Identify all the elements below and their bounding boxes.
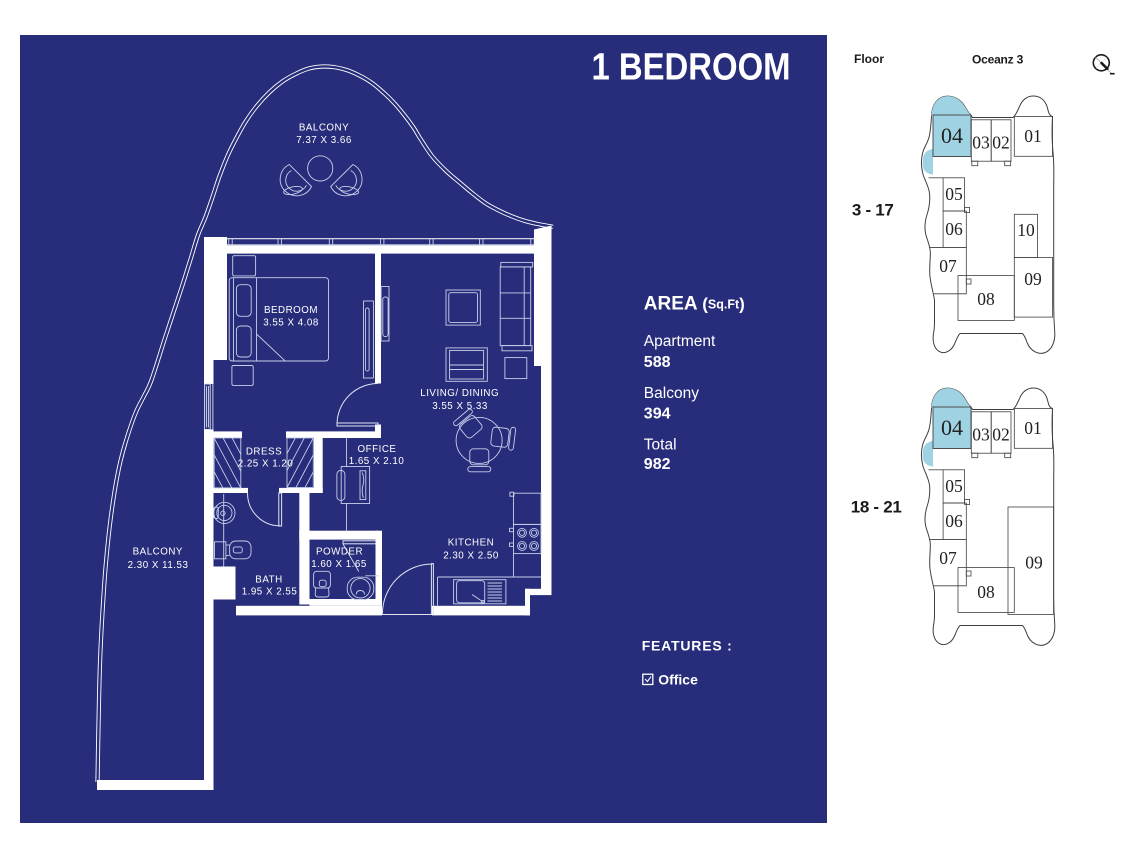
svg-text:08: 08 <box>977 289 995 309</box>
svg-text:Floor: Floor <box>854 52 884 66</box>
svg-text:3.55 X 4.08: 3.55 X 4.08 <box>263 318 319 329</box>
svg-text:3 - 17: 3 - 17 <box>852 201 894 220</box>
svg-text:DRESS: DRESS <box>246 447 282 458</box>
svg-text:BALCONY: BALCONY <box>299 123 349 134</box>
svg-text:BATH: BATH <box>255 575 282 586</box>
svg-text:10: 10 <box>1017 220 1035 240</box>
svg-text:07: 07 <box>939 548 957 568</box>
svg-text:03: 03 <box>972 133 990 153</box>
svg-text:AREA (Sq.Ft): AREA (Sq.Ft) <box>644 293 745 314</box>
svg-text:18 - 21: 18 - 21 <box>851 498 902 517</box>
svg-text:KITCHEN: KITCHEN <box>448 538 495 549</box>
svg-text:02: 02 <box>992 425 1010 445</box>
svg-text:2.25 X 1.20: 2.25 X 1.20 <box>238 459 294 470</box>
svg-text:01: 01 <box>1024 126 1042 146</box>
svg-text:05: 05 <box>945 184 963 204</box>
svg-text:394: 394 <box>644 406 671 423</box>
svg-text:588: 588 <box>644 354 671 371</box>
svg-text:7.37 X 3.66: 7.37 X 3.66 <box>296 135 352 146</box>
svg-text:2.30 X 2.50: 2.30 X 2.50 <box>443 551 499 562</box>
svg-text:04: 04 <box>941 415 963 440</box>
svg-text:Apartment: Apartment <box>644 333 716 350</box>
svg-text:FEATURES :: FEATURES : <box>642 638 733 654</box>
svg-text:Balcony: Balcony <box>644 385 699 402</box>
svg-text:1 BEDROOM: 1 BEDROOM <box>592 47 791 89</box>
svg-text:07: 07 <box>939 256 957 276</box>
svg-text:BALCONY: BALCONY <box>133 547 183 558</box>
svg-text:05: 05 <box>945 476 963 496</box>
svg-text:POWDER: POWDER <box>316 547 363 558</box>
svg-text:OFFICE: OFFICE <box>358 444 397 455</box>
svg-text:982: 982 <box>644 456 671 473</box>
svg-text:1.60 X 1.65: 1.60 X 1.65 <box>311 559 367 570</box>
svg-text:04: 04 <box>941 123 963 148</box>
svg-text:1.65 X 2.10: 1.65 X 2.10 <box>349 456 405 467</box>
svg-text:2.30 X 11.53: 2.30 X 11.53 <box>128 560 189 571</box>
svg-text:01: 01 <box>1024 418 1042 438</box>
svg-text:Oceanz 3: Oceanz 3 <box>972 53 1024 67</box>
svg-text:06: 06 <box>945 511 963 531</box>
svg-text:09: 09 <box>1024 269 1042 289</box>
svg-text:1.95 X 2.55: 1.95 X 2.55 <box>242 587 298 598</box>
svg-text:09: 09 <box>1025 553 1043 573</box>
svg-text:3.55 X 5.33: 3.55 X 5.33 <box>432 401 488 412</box>
svg-text:Office: Office <box>658 672 698 688</box>
svg-text:06: 06 <box>945 219 963 239</box>
svg-text:BEDROOM: BEDROOM <box>264 305 318 316</box>
svg-text:03: 03 <box>972 425 990 445</box>
svg-text:Total: Total <box>644 437 677 454</box>
svg-text:LIVING/ DINING: LIVING/ DINING <box>420 388 499 399</box>
svg-text:02: 02 <box>992 133 1010 153</box>
svg-text:08: 08 <box>977 582 995 602</box>
